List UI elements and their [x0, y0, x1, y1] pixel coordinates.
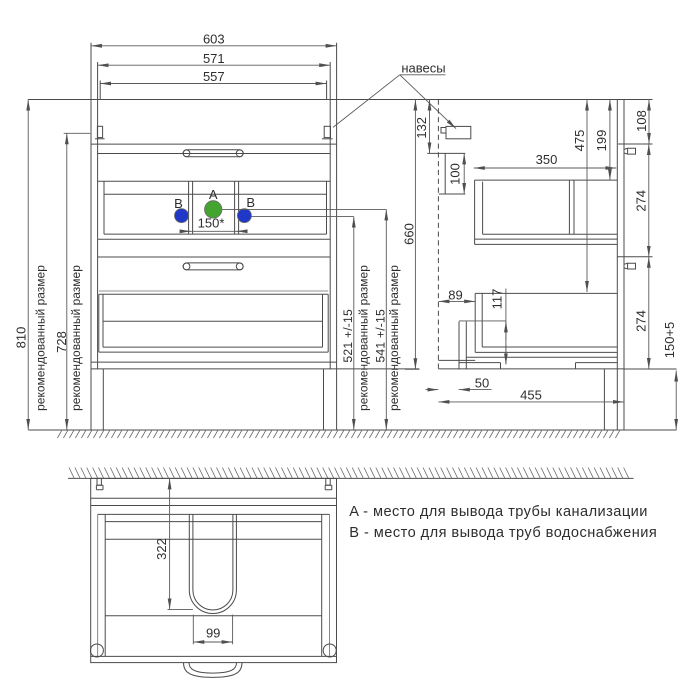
svg-text:475: 475: [572, 130, 587, 152]
svg-text:199: 199: [594, 130, 609, 152]
svg-text:521 +/-15: 521 +/-15: [341, 309, 355, 363]
svg-text:навесы: навесы: [401, 61, 445, 76]
svg-text:117: 117: [490, 289, 505, 310]
svg-text:350: 350: [536, 152, 558, 167]
svg-text:603: 603: [203, 32, 225, 47]
svg-text:99: 99: [206, 626, 220, 641]
svg-text:660: 660: [401, 223, 416, 245]
svg-text:рекомендованный размер: рекомендованный размер: [357, 265, 371, 411]
svg-text:274: 274: [634, 310, 649, 332]
svg-text:B: B: [246, 195, 255, 210]
svg-text:322: 322: [154, 538, 169, 560]
svg-text:рекомендованный размер: рекомендованный размер: [34, 265, 48, 411]
svg-text:рекомендованный размер: рекомендованный размер: [69, 265, 83, 411]
svg-text:50: 50: [475, 375, 489, 390]
svg-text:728: 728: [54, 331, 69, 353]
svg-text:132: 132: [414, 117, 429, 139]
svg-text:810: 810: [14, 327, 29, 349]
svg-text:571: 571: [203, 51, 225, 66]
svg-text:100: 100: [448, 163, 463, 185]
svg-text:A: A: [209, 187, 218, 202]
svg-text:89: 89: [448, 287, 462, 302]
svg-text:274: 274: [634, 190, 649, 212]
svg-text:455: 455: [520, 388, 542, 403]
svg-text:B - место для вывода труб водо: B - место для вывода труб водоснабжения: [349, 525, 657, 541]
svg-text:рекомендованный размер: рекомендованный размер: [387, 265, 401, 411]
svg-text:557: 557: [203, 69, 225, 84]
svg-text:A - место для вывода трубы кан: A - место для вывода трубы канализации: [349, 504, 648, 520]
svg-text:541 +/-15: 541 +/-15: [373, 309, 387, 363]
svg-text:108: 108: [634, 110, 649, 132]
svg-text:150*: 150*: [198, 215, 225, 230]
svg-text:150+5: 150+5: [662, 322, 677, 359]
